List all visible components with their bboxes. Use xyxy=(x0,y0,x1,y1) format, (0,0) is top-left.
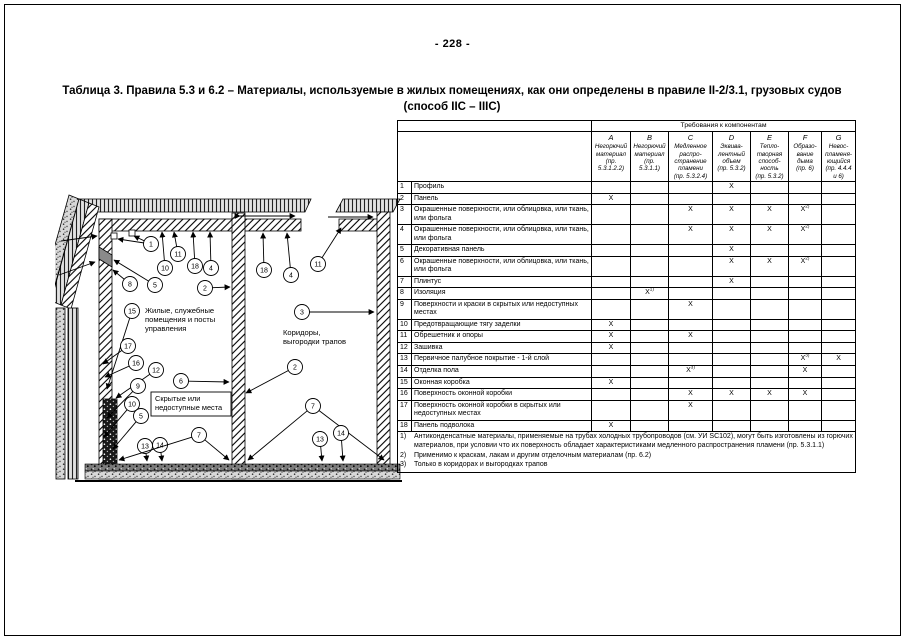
mark-cell xyxy=(631,256,669,276)
mark-cell xyxy=(713,354,751,366)
callout-leader xyxy=(146,453,147,461)
footnote: 3)Только в коридорах и выгородках трапов xyxy=(400,461,853,470)
mark-cell xyxy=(669,319,713,331)
mark-cell xyxy=(789,319,822,331)
callout-number: 18 xyxy=(260,268,268,275)
mark-cell: X xyxy=(669,225,713,245)
table-row: 5Декоративная панельX xyxy=(398,245,856,257)
label-hidden-spaces-box: Скрытые илинедоступные места xyxy=(151,392,231,416)
callout-leader xyxy=(205,440,229,460)
callout-leader xyxy=(174,232,177,247)
mark-cell xyxy=(822,389,856,401)
accommodation-spaces-diagram: Жилые, служебныепомещения и постыуправле… xyxy=(55,183,405,493)
callout-number: 7 xyxy=(197,433,201,440)
mark-cell xyxy=(713,420,751,432)
table-row: 10Предотвращающие тягу заделкиX xyxy=(398,319,856,331)
callout-number: 14 xyxy=(337,431,345,438)
callout-leader xyxy=(134,236,144,241)
mark-cell xyxy=(631,389,669,401)
mark-cell xyxy=(631,366,669,378)
group-header: Требования к компонентам xyxy=(592,121,856,132)
row-number: 12 xyxy=(398,342,412,354)
table-row: 17Поверхность оконной коробки в скрытых … xyxy=(398,400,856,420)
column-header-B: BНегорючий материал (пр. 5.3.1.1) xyxy=(631,132,669,182)
mark-cell: X xyxy=(789,366,822,378)
label-accommodation-spaces: Жилые, служебныепомещения и постыуправле… xyxy=(145,306,215,333)
mark-cell xyxy=(822,319,856,331)
callout-leader xyxy=(162,232,164,261)
callout-number: 2 xyxy=(203,286,207,293)
mark-cell xyxy=(631,319,669,331)
callout-number: 8 xyxy=(128,282,132,289)
callout-number: 3 xyxy=(300,310,304,317)
row-number: 1 xyxy=(398,181,412,193)
callout-leader xyxy=(210,232,211,261)
callout-number: 15 xyxy=(128,309,136,316)
callout-leader xyxy=(161,452,162,461)
row-label: Панель подволока xyxy=(412,420,592,432)
row-number: 10 xyxy=(398,319,412,331)
footnote: 2)Применимо к краскам, лакам и другим от… xyxy=(400,452,853,461)
row-label: Панель xyxy=(412,193,592,205)
row-label: Окрашенные поверхности, или облицовка, и… xyxy=(412,256,592,276)
row-number: 7 xyxy=(398,276,412,288)
table-row: 13Первичное палубное покрытие - 1-й слой… xyxy=(398,354,856,366)
table-row: 11Обрешетник и опорыXX xyxy=(398,331,856,343)
row-label: Оконная коробка xyxy=(412,377,592,389)
floor-finish xyxy=(85,471,400,479)
page-number: - 228 - xyxy=(0,38,905,50)
mark-cell xyxy=(669,342,713,354)
mark-cell: X xyxy=(751,389,789,401)
mark-cell xyxy=(789,288,822,300)
callout-number: 10 xyxy=(128,402,136,409)
callout-leader xyxy=(118,239,144,243)
mark-cell xyxy=(669,193,713,205)
callout-leader xyxy=(263,233,264,263)
row-number: 2 xyxy=(398,193,412,205)
mark-cell xyxy=(631,342,669,354)
mark-cell: X xyxy=(751,225,789,245)
row-number: 14 xyxy=(398,366,412,378)
page-title: Таблица 3. Правила 5.3 и 6.2 – Материалы… xyxy=(57,84,847,115)
table-body: 1ПрофильX2ПанельX3Окрашенные поверхности… xyxy=(398,181,856,431)
mark-cell: X xyxy=(713,181,751,193)
row-number: 4 xyxy=(398,225,412,245)
mark-cell: X3) xyxy=(789,354,822,366)
row-label: Зашивка xyxy=(412,342,592,354)
mark-cell xyxy=(592,288,631,300)
row-number: 8 xyxy=(398,288,412,300)
materials-requirements-table: Требования к компонентам AНегорючий мате… xyxy=(397,120,856,473)
callout-number: 2 xyxy=(293,365,297,372)
side-shell-lower-vert xyxy=(68,308,78,479)
mark-cell: X1) xyxy=(631,288,669,300)
callout-number: 11 xyxy=(314,262,321,269)
table-row: 18Панель подволокаX xyxy=(398,420,856,432)
mark-cell xyxy=(631,299,669,319)
table-row: 14Отделка полаX3)X xyxy=(398,366,856,378)
mark-cell xyxy=(713,319,751,331)
row-number: 15 xyxy=(398,377,412,389)
mark-cell xyxy=(822,256,856,276)
row-label: Окрашенные поверхности, или облицовка, и… xyxy=(412,205,592,225)
callout-leader xyxy=(193,232,195,259)
row-label: Профиль xyxy=(412,181,592,193)
table-row: 4Окрашенные поверхности, или облицовка, … xyxy=(398,225,856,245)
mark-cell xyxy=(631,354,669,366)
mark-cell: X xyxy=(789,389,822,401)
mark-cell: X xyxy=(592,342,631,354)
mark-cell xyxy=(592,245,631,257)
row-number: 6 xyxy=(398,256,412,276)
row-label: Отделка пола xyxy=(412,366,592,378)
table-row: 1ПрофильX xyxy=(398,181,856,193)
mark-cell xyxy=(592,366,631,378)
mark-cell xyxy=(751,400,789,420)
mark-cell: X xyxy=(713,245,751,257)
mark-cell xyxy=(822,299,856,319)
callout-number: 6 xyxy=(179,379,183,386)
table-row: 8ИзоляцияX1) xyxy=(398,288,856,300)
column-header-G: GНевос- пламеня- ющийся (пр. 4.4.4 и 6) xyxy=(822,132,856,182)
mark-cell xyxy=(631,245,669,257)
mark-cell xyxy=(751,420,789,432)
mark-cell xyxy=(631,331,669,343)
callout-number: 13 xyxy=(141,444,149,451)
callout-leader xyxy=(322,228,341,258)
row-label: Изоляция xyxy=(412,288,592,300)
mark-cell xyxy=(631,420,669,432)
table-row: 9Поверхности и краски в скрытых или недо… xyxy=(398,299,856,319)
mark-cell xyxy=(669,181,713,193)
table-row: 7ПлинтусX xyxy=(398,276,856,288)
mark-cell: X xyxy=(669,205,713,225)
row-label: Поверхность оконной коробки в скрытых ил… xyxy=(412,400,592,420)
table-row: 2ПанельX xyxy=(398,193,856,205)
mark-cell: X xyxy=(592,377,631,389)
callout-leader xyxy=(212,287,230,288)
mark-cell: X xyxy=(669,331,713,343)
row-label: Поверхность оконной коробки xyxy=(412,389,592,401)
column-header-D: DЭквива- лентный объем (пр. 5.3.2) xyxy=(713,132,751,182)
footnotes-row: 1)Антиконденсатные материалы, применяемы… xyxy=(398,432,856,473)
callout-number: 1 xyxy=(149,242,153,249)
column-header-E: EТепло- творная способ- ность (пр. 5.3.2… xyxy=(751,132,789,182)
mark-cell xyxy=(822,288,856,300)
callout-number: 7 xyxy=(311,404,315,411)
mark-cell: X xyxy=(713,225,751,245)
mark-cell xyxy=(631,225,669,245)
table-row: 6Окрашенные поверхности, или облицовка, … xyxy=(398,256,856,276)
mark-cell xyxy=(713,193,751,205)
table-row: 12ЗашивкаX xyxy=(398,342,856,354)
right-wall xyxy=(377,212,390,479)
mark-cell xyxy=(713,400,751,420)
mark-cell xyxy=(631,205,669,225)
mark-cell xyxy=(713,331,751,343)
callout-leader xyxy=(321,446,322,461)
mark-cell xyxy=(631,193,669,205)
column-header-C: CМедленное распро- странение пламени (пр… xyxy=(669,132,713,182)
mark-cell: X xyxy=(592,331,631,343)
row-number: 3 xyxy=(398,205,412,225)
callout-leader xyxy=(287,233,290,268)
mark-cell xyxy=(751,331,789,343)
middle-bulkhead xyxy=(232,213,245,479)
callout-number: 18 xyxy=(191,264,199,271)
mark-cell xyxy=(822,225,856,245)
mark-cell xyxy=(822,377,856,389)
footnote: 1)Антиконденсатные материалы, применяемы… xyxy=(400,433,853,451)
side-shell-lower-speckle xyxy=(56,308,65,479)
mark-cell xyxy=(822,193,856,205)
column-header-row: AНегорючий материал (пр. 5.3.1.2.2)BНего… xyxy=(398,132,856,182)
row-number: 18 xyxy=(398,420,412,432)
mark-cell xyxy=(713,288,751,300)
mark-cell: X2) xyxy=(789,205,822,225)
mark-cell xyxy=(751,319,789,331)
row-label: Окрашенные поверхности, или облицовка, и… xyxy=(412,225,592,245)
mark-cell xyxy=(789,377,822,389)
mark-cell xyxy=(751,181,789,193)
row-label: Декоративная панель xyxy=(412,245,592,257)
row-label: Плинтус xyxy=(412,276,592,288)
callout-number: 4 xyxy=(289,273,293,280)
mark-cell xyxy=(751,299,789,319)
mark-cell xyxy=(592,389,631,401)
callout-number: 13 xyxy=(316,437,324,444)
mark-cell xyxy=(669,377,713,389)
mark-cell: X xyxy=(592,193,631,205)
callout-number: 16 xyxy=(132,361,140,368)
callout-number: 12 xyxy=(152,368,160,375)
column-header-A: AНегорючий материал (пр. 5.3.1.2.2) xyxy=(592,132,631,182)
column-header-F: FОбразо- вание дыма (пр. 6) xyxy=(789,132,822,182)
mark-cell: X xyxy=(713,276,751,288)
mark-cell xyxy=(713,299,751,319)
mark-cell xyxy=(669,276,713,288)
mark-cell xyxy=(751,366,789,378)
callout-leader xyxy=(342,440,343,461)
row-label: Обрешетник и опоры xyxy=(412,331,592,343)
mark-cell xyxy=(751,377,789,389)
table-row: 16Поверхность оконной коробкиXXXX xyxy=(398,389,856,401)
mark-cell xyxy=(751,342,789,354)
profile-square-2 xyxy=(129,230,135,236)
ceiling-panel-left xyxy=(99,219,301,231)
callout-number: 5 xyxy=(153,283,157,290)
callout-leader xyxy=(188,381,229,382)
row-number: 13 xyxy=(398,354,412,366)
table-row: 3Окрашенные поверхности, или облицовка, … xyxy=(398,205,856,225)
mark-cell: X xyxy=(669,400,713,420)
mark-cell xyxy=(822,331,856,343)
mark-cell xyxy=(822,245,856,257)
callout-number: 10 xyxy=(161,266,169,273)
mark-cell xyxy=(669,420,713,432)
mark-cell: X xyxy=(592,420,631,432)
mark-cell xyxy=(822,205,856,225)
callout-number: 17 xyxy=(124,344,132,351)
primary-deck-covering xyxy=(85,464,400,471)
mark-cell xyxy=(751,276,789,288)
mark-cell xyxy=(592,225,631,245)
mark-cell: X xyxy=(713,389,751,401)
mark-cell: X xyxy=(751,205,789,225)
mark-cell xyxy=(631,377,669,389)
row-label: Поверхности и краски в скрытых или недос… xyxy=(412,299,592,319)
mark-cell xyxy=(713,366,751,378)
mark-cell xyxy=(592,256,631,276)
row-label: Предотвращающие тягу заделки xyxy=(412,319,592,331)
footnotes: 1)Антиконденсатные материалы, применяемы… xyxy=(398,432,856,473)
mark-cell: X xyxy=(713,256,751,276)
row-number: 17 xyxy=(398,400,412,420)
mark-cell xyxy=(713,342,751,354)
mark-cell xyxy=(822,342,856,354)
mark-cell xyxy=(592,181,631,193)
ceiling-panel-right xyxy=(339,219,382,231)
mark-cell xyxy=(822,400,856,420)
row-label: Первичное палубное покрытие - 1-й слой xyxy=(412,354,592,366)
mark-cell xyxy=(751,354,789,366)
mark-cell xyxy=(789,276,822,288)
mark-cell: X2) xyxy=(789,256,822,276)
mark-cell: X xyxy=(592,319,631,331)
mark-cell: X xyxy=(669,299,713,319)
row-number: 16 xyxy=(398,389,412,401)
mark-cell xyxy=(592,354,631,366)
callout-number: 5 xyxy=(139,414,143,421)
mark-cell xyxy=(789,400,822,420)
mark-cell xyxy=(592,400,631,420)
row-number: 9 xyxy=(398,299,412,319)
mark-cell xyxy=(669,256,713,276)
mark-cell xyxy=(751,193,789,205)
mark-cell xyxy=(592,299,631,319)
callout-number: 4 xyxy=(209,266,213,273)
mark-cell xyxy=(789,420,822,432)
mark-cell: X xyxy=(713,205,751,225)
mark-cell xyxy=(669,245,713,257)
upper-deck-right-hatch xyxy=(336,199,400,212)
mark-cell: X3) xyxy=(669,366,713,378)
mark-cell xyxy=(631,400,669,420)
row-number: 5 xyxy=(398,245,412,257)
mark-cell xyxy=(713,377,751,389)
group-header-row: Требования к компонентам xyxy=(398,121,856,132)
mark-cell xyxy=(822,366,856,378)
table-row: 15Оконная коробкаX xyxy=(398,377,856,389)
row-number: 11 xyxy=(398,331,412,343)
mark-cell: X xyxy=(669,389,713,401)
callout-leader xyxy=(248,411,307,460)
mark-cell xyxy=(669,288,713,300)
callout-leader xyxy=(319,411,384,460)
mark-cell xyxy=(789,299,822,319)
mark-cell: X xyxy=(751,256,789,276)
mark-cell: X xyxy=(822,354,856,366)
mark-cell xyxy=(789,181,822,193)
upper-deck-hatch xyxy=(73,199,311,212)
mark-cell xyxy=(592,205,631,225)
callout-number: 9 xyxy=(136,384,140,391)
mark-cell xyxy=(822,181,856,193)
callout-leader xyxy=(246,371,288,393)
callout-leader xyxy=(113,270,124,279)
mark-cell xyxy=(789,331,822,343)
mark-cell: X2) xyxy=(789,225,822,245)
mark-cell xyxy=(592,276,631,288)
mark-cell xyxy=(751,245,789,257)
mark-cell xyxy=(751,288,789,300)
label-corridors-stairways: Коридоры,выгородки трапов xyxy=(283,328,346,346)
mark-cell xyxy=(631,181,669,193)
mark-cell xyxy=(822,420,856,432)
profile-square-1 xyxy=(111,233,117,239)
callout-number: 11 xyxy=(174,252,181,259)
mark-cell xyxy=(822,276,856,288)
